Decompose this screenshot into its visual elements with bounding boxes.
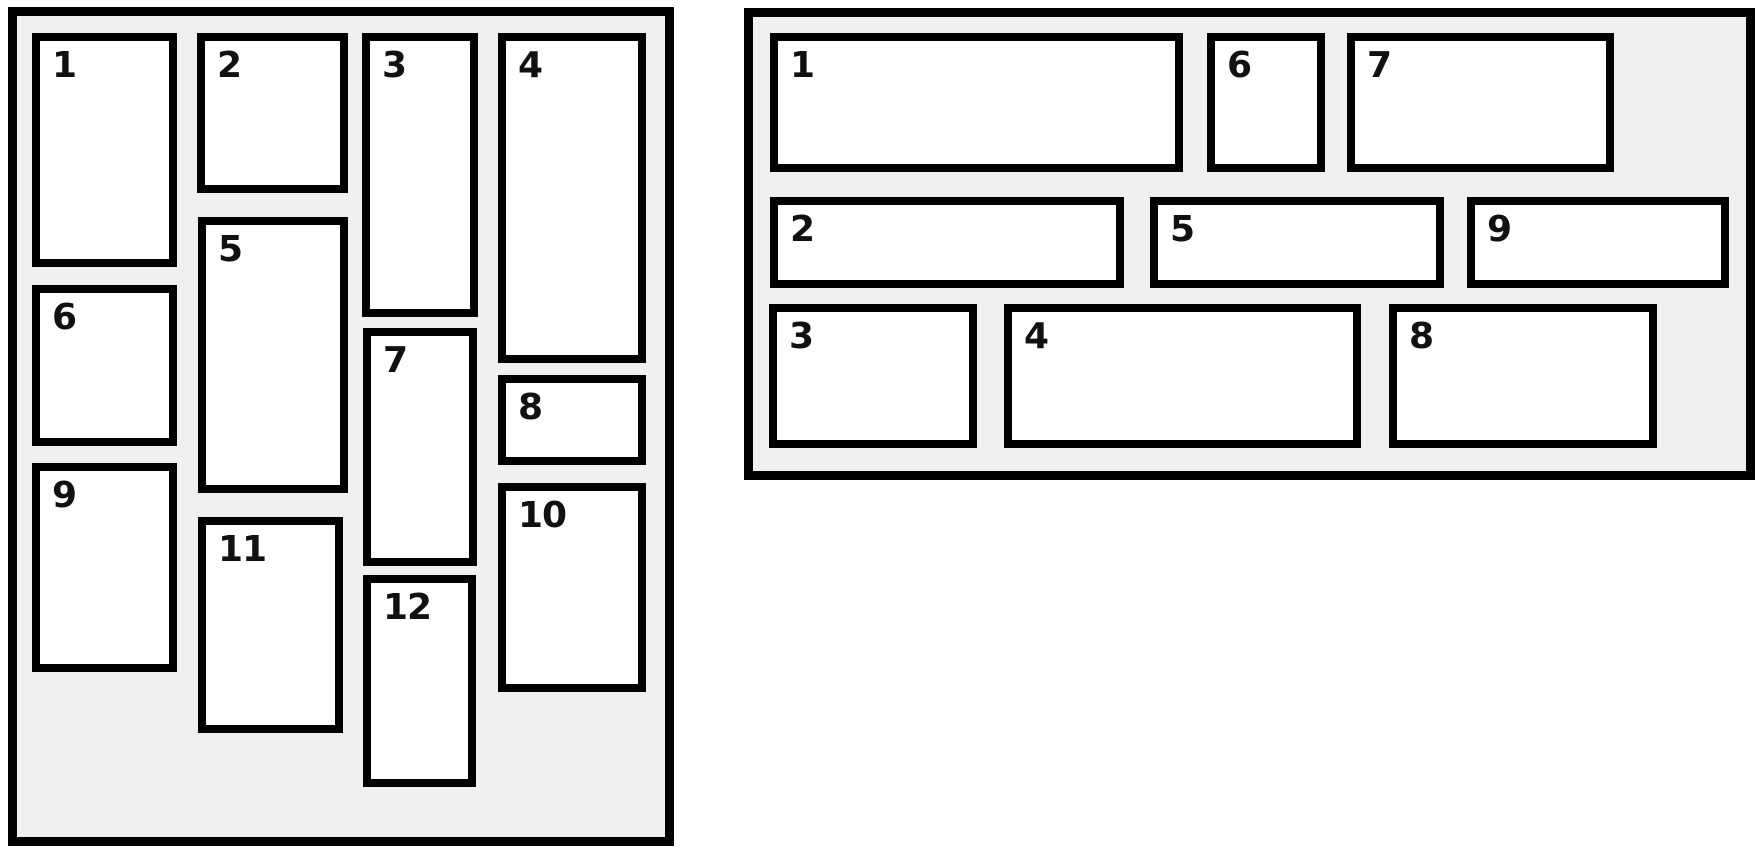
masonry-item-5: 5 <box>198 217 348 493</box>
masonry-item-2: 2 <box>197 33 348 193</box>
masonry-item-1: 1 <box>770 33 1183 172</box>
masonry-item-11: 11 <box>198 517 343 733</box>
masonry-item-6: 6 <box>32 285 177 446</box>
masonry-item-4: 4 <box>1004 304 1361 448</box>
masonry-item-8: 8 <box>498 375 646 465</box>
masonry-item-2: 2 <box>770 197 1124 288</box>
masonry-item-7: 7 <box>1347 33 1614 172</box>
masonry-item-3: 3 <box>769 304 977 448</box>
masonry-item-1: 1 <box>32 33 177 267</box>
page: 1 2 3 4 5 6 7 8 9 10 11 12 1 2 3 4 5 6 7… <box>0 0 1755 852</box>
vertical-masonry-panel: 1 2 3 4 5 6 7 8 9 10 11 12 <box>8 7 674 846</box>
masonry-item-7: 7 <box>363 328 477 566</box>
masonry-item-9: 9 <box>1467 197 1729 288</box>
masonry-item-4: 4 <box>498 33 646 363</box>
masonry-item-12: 12 <box>363 575 476 787</box>
masonry-item-3: 3 <box>362 33 478 317</box>
masonry-item-6: 6 <box>1207 33 1325 172</box>
masonry-item-9: 9 <box>32 463 177 672</box>
masonry-item-10: 10 <box>498 483 646 692</box>
masonry-item-5: 5 <box>1150 197 1444 288</box>
masonry-item-8: 8 <box>1389 304 1657 448</box>
horizontal-masonry-panel: 1 2 3 4 5 6 7 8 9 <box>744 8 1755 480</box>
